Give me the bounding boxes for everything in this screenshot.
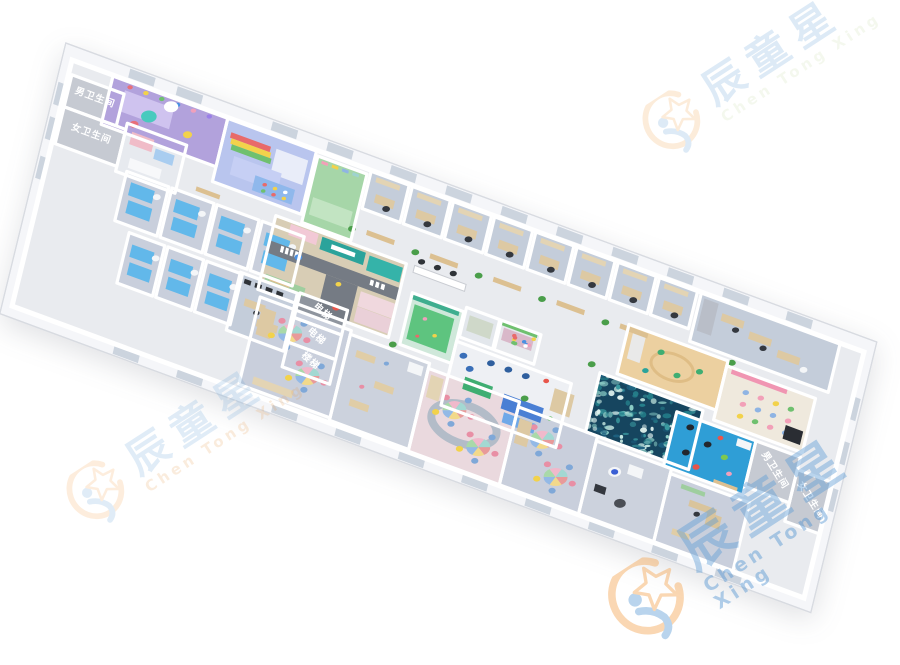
grid-dot: [273, 187, 278, 191]
chair: [533, 476, 540, 482]
floorplan-stage: 男卫生间女卫生间男卫生间女卫生间电梯电梯楼梯 辰童星 Chen Tong Xin…: [0, 0, 900, 652]
item-of-pt-gym: [466, 366, 474, 372]
grid-dot: [261, 189, 266, 193]
grid-dot: [271, 193, 276, 197]
ocean-dot: [651, 417, 657, 420]
item-of-therapy-bed-3: [243, 227, 251, 233]
item-of-office-5: [547, 267, 555, 273]
item-of-open-office: [800, 367, 808, 373]
item-of-open-office: [732, 327, 739, 333]
chair: [488, 435, 495, 441]
ocean-dot: [658, 401, 667, 404]
ocean-dot: [631, 440, 637, 443]
item-of-pt-gym: [460, 353, 468, 359]
item-of-green-projection-room: [415, 335, 419, 338]
chair: [303, 337, 310, 343]
grid-dot: [752, 419, 759, 424]
item-of-green-projection-room: [432, 334, 437, 338]
item-of-blue-active-room: [721, 455, 728, 461]
item-of-office-1: [382, 206, 390, 212]
ocean-dot: [600, 391, 607, 396]
chair: [432, 409, 439, 415]
grid-dot: [159, 97, 164, 101]
ocean-dot: [604, 426, 610, 429]
item-of-wood-gym: [642, 368, 649, 373]
ocean-dot: [640, 398, 645, 401]
item-of-front-office: [693, 512, 700, 517]
ocean-dot: [645, 445, 651, 447]
item-of-office-2: [423, 221, 431, 227]
ball: [522, 340, 526, 344]
chair: [456, 446, 463, 452]
ball: [513, 336, 517, 340]
grid-dot: [773, 401, 780, 406]
item-of-purple-playroom: [141, 110, 157, 122]
item-of-wood-gym: [673, 373, 680, 379]
grid-dot: [504, 367, 512, 373]
corridor-item: [588, 361, 596, 367]
ocean-dot: [666, 435, 669, 439]
item-of-wood-gym: [658, 350, 665, 356]
chair: [300, 387, 307, 393]
ball: [523, 344, 527, 348]
chair: [268, 332, 275, 338]
ocean-dot: [641, 434, 644, 438]
ocean-dot: [640, 427, 647, 432]
item-of-street-simulation: [335, 282, 341, 287]
item-of-small-tables-room: [384, 362, 389, 366]
ocean-dot: [599, 381, 608, 386]
ocean-dot: [632, 445, 641, 448]
chair: [569, 481, 576, 487]
ball: [513, 342, 517, 346]
ocean-dot: [623, 433, 630, 435]
ocean-dot: [661, 423, 669, 427]
corridor-item: [389, 342, 397, 348]
item-of-therapy-bed-b-1: [152, 255, 160, 261]
item-of-blue-active-room: [726, 472, 732, 477]
item-of-blue-active-room: [686, 424, 694, 430]
corridor-item: [411, 249, 419, 255]
floorplan-rendering: 男卫生间女卫生间男卫生间女卫生间电梯电梯楼梯: [0, 0, 900, 652]
grid-dot: [788, 407, 795, 412]
item-of-therapy-bed-b-2: [191, 270, 199, 276]
item-of-sensory-device-room: [614, 499, 626, 508]
item-of-green-projection-room: [423, 317, 428, 321]
chair: [278, 318, 285, 324]
ocean-dot: [654, 441, 658, 446]
chair: [447, 421, 454, 427]
ocean-dot: [649, 413, 658, 416]
item-of-pt-gym: [543, 379, 549, 384]
grid-dot: [522, 373, 530, 379]
grid-dot: [191, 109, 196, 113]
ocean-dot: [597, 400, 602, 404]
item-of-therapy-bed-1: [153, 194, 161, 200]
item-of-office-6: [588, 282, 596, 288]
chair: [296, 360, 303, 366]
grid-dot: [207, 114, 212, 118]
ocean-dot: [620, 439, 623, 443]
item-of-small-tables-room: [359, 385, 364, 389]
chair: [566, 464, 573, 470]
ocean-dot: [643, 395, 648, 398]
ocean-dot: [620, 435, 623, 439]
ocean-dot: [657, 414, 661, 418]
ocean-dot: [613, 435, 620, 438]
ocean-dot: [592, 424, 597, 429]
item-of-wood-gym: [696, 369, 703, 375]
corridor-item: [434, 265, 441, 271]
corridor-item: [538, 296, 546, 302]
item-of-purple-playroom: [164, 101, 178, 112]
ocean-dot: [617, 395, 623, 400]
ocean-dot: [626, 413, 633, 417]
ocean-dot: [648, 433, 654, 438]
chair: [491, 451, 498, 457]
ocean-dot: [632, 394, 637, 397]
ocean-dot: [602, 422, 605, 425]
chair: [548, 488, 555, 494]
grid-dot: [143, 91, 148, 95]
item-of-purple-playroom: [183, 131, 192, 138]
item-of-therapy-bed-2: [198, 211, 206, 217]
ocean-dot: [608, 390, 614, 396]
grid-dot: [283, 191, 288, 195]
grid-dot: [743, 390, 750, 395]
item-of-open-office: [759, 346, 766, 352]
grid-dot: [785, 419, 792, 424]
ocean-dot: [651, 398, 657, 404]
item-of-blue-active-room: [693, 464, 700, 470]
ocean-dot: [663, 413, 672, 418]
corridor-item: [521, 395, 529, 401]
ocean-dot: [640, 412, 646, 418]
item-of-sensory-device-room: [611, 469, 618, 475]
chair: [471, 458, 478, 464]
grid-dot: [755, 407, 762, 412]
ocean-dot: [629, 405, 633, 411]
ball: [532, 337, 536, 341]
item-of-blue-active-room: [704, 442, 712, 448]
chair: [544, 461, 551, 467]
ocean-dot: [643, 439, 652, 445]
chair: [535, 451, 542, 457]
grid-dot: [770, 413, 777, 418]
item-of-office-3: [465, 236, 473, 242]
ocean-dot: [633, 418, 642, 421]
ocean-dot: [639, 404, 645, 407]
grid-dot: [282, 197, 287, 201]
ocean-dot: [616, 384, 620, 389]
ocean-dot: [595, 411, 599, 417]
grid-dot: [487, 360, 495, 366]
item-of-office-8: [671, 312, 679, 318]
chair: [285, 375, 292, 381]
ocean-dot: [605, 411, 613, 417]
ocean-dot: [616, 417, 620, 423]
item-of-office-7: [629, 297, 637, 303]
grid-dot: [740, 402, 747, 407]
ocean-dot: [630, 422, 636, 427]
item-of-blue-active-room: [718, 436, 724, 441]
corridor-item: [475, 273, 483, 279]
ocean-dot: [633, 438, 638, 440]
grid-dot: [127, 85, 132, 89]
corridor-item: [450, 271, 457, 277]
corridor-item: [601, 319, 609, 325]
corridor-item: [418, 259, 425, 265]
grid-dot: [758, 396, 765, 401]
ocean-dot: [660, 407, 665, 411]
chair: [467, 432, 474, 438]
ocean-dot: [626, 400, 630, 406]
grid-dot: [262, 183, 267, 187]
grid-dot: [737, 414, 744, 419]
ocean-dot: [620, 413, 625, 415]
item-of-blue-active-room: [682, 450, 690, 456]
item-of-office-4: [506, 252, 514, 258]
grid-dot: [767, 425, 774, 430]
ocean-dot: [651, 427, 654, 431]
chair: [465, 398, 472, 404]
